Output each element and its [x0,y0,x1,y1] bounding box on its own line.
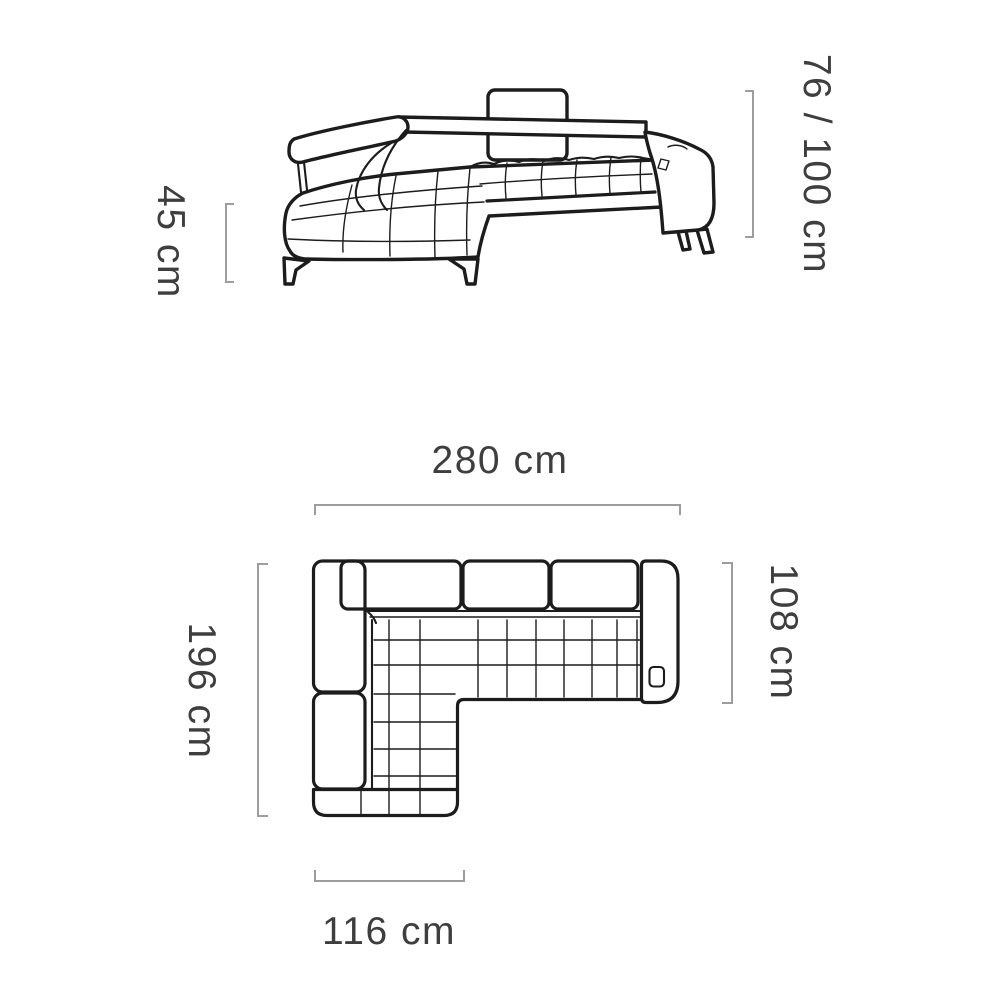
label-chaise-width: 116 cm [322,910,456,954]
bracket-right-depth [722,563,732,703]
label-back-height: 76 / 100 cm [794,54,838,274]
seat-silhouette [284,160,662,260]
plan-back-cushion-1 [341,561,461,609]
plan-back-cushion-3 [551,561,638,609]
plan-seat-left-boundary [368,612,376,788]
plan-armrest-right-mechanism [650,667,665,687]
sofa-top-view [314,561,679,816]
label-total-depth: 196 cm [179,623,223,760]
label-total-width: 280 cm [432,439,569,483]
plan-chaise-front-bumper [314,790,458,816]
bracket-chaise-width [315,870,464,881]
bracket-seat-height [226,204,234,282]
sofa-side-view [284,90,714,284]
bracket-total-depth [258,564,268,816]
plan-armrest-right [642,561,679,703]
sofa-leg-rear-small [678,231,690,250]
plan-back-cushion-2 [463,561,549,609]
plan-armrest-left-upper [314,561,366,692]
sofa-leg-rear-right [697,229,713,253]
sofa-leg-front-mid [449,259,478,284]
armrest-left-pad [289,117,408,163]
bracket-back-height [745,91,753,237]
diagram-line-art [0,0,1000,1000]
plan-seat-quilt-grid [361,620,640,815]
bracket-total-width [315,505,680,515]
plan-armrest-left-lower [314,693,366,789]
label-right-depth: 108 cm [761,564,805,701]
sofa-dimension-diagram: 45 cm 76 / 100 cm 280 cm 196 cm 108 cm 1… [0,0,1000,1000]
plan-seat-front-edge [458,700,642,790]
sofa-leg-front-left [284,258,309,284]
label-seat-height: 45 cm [148,185,192,299]
